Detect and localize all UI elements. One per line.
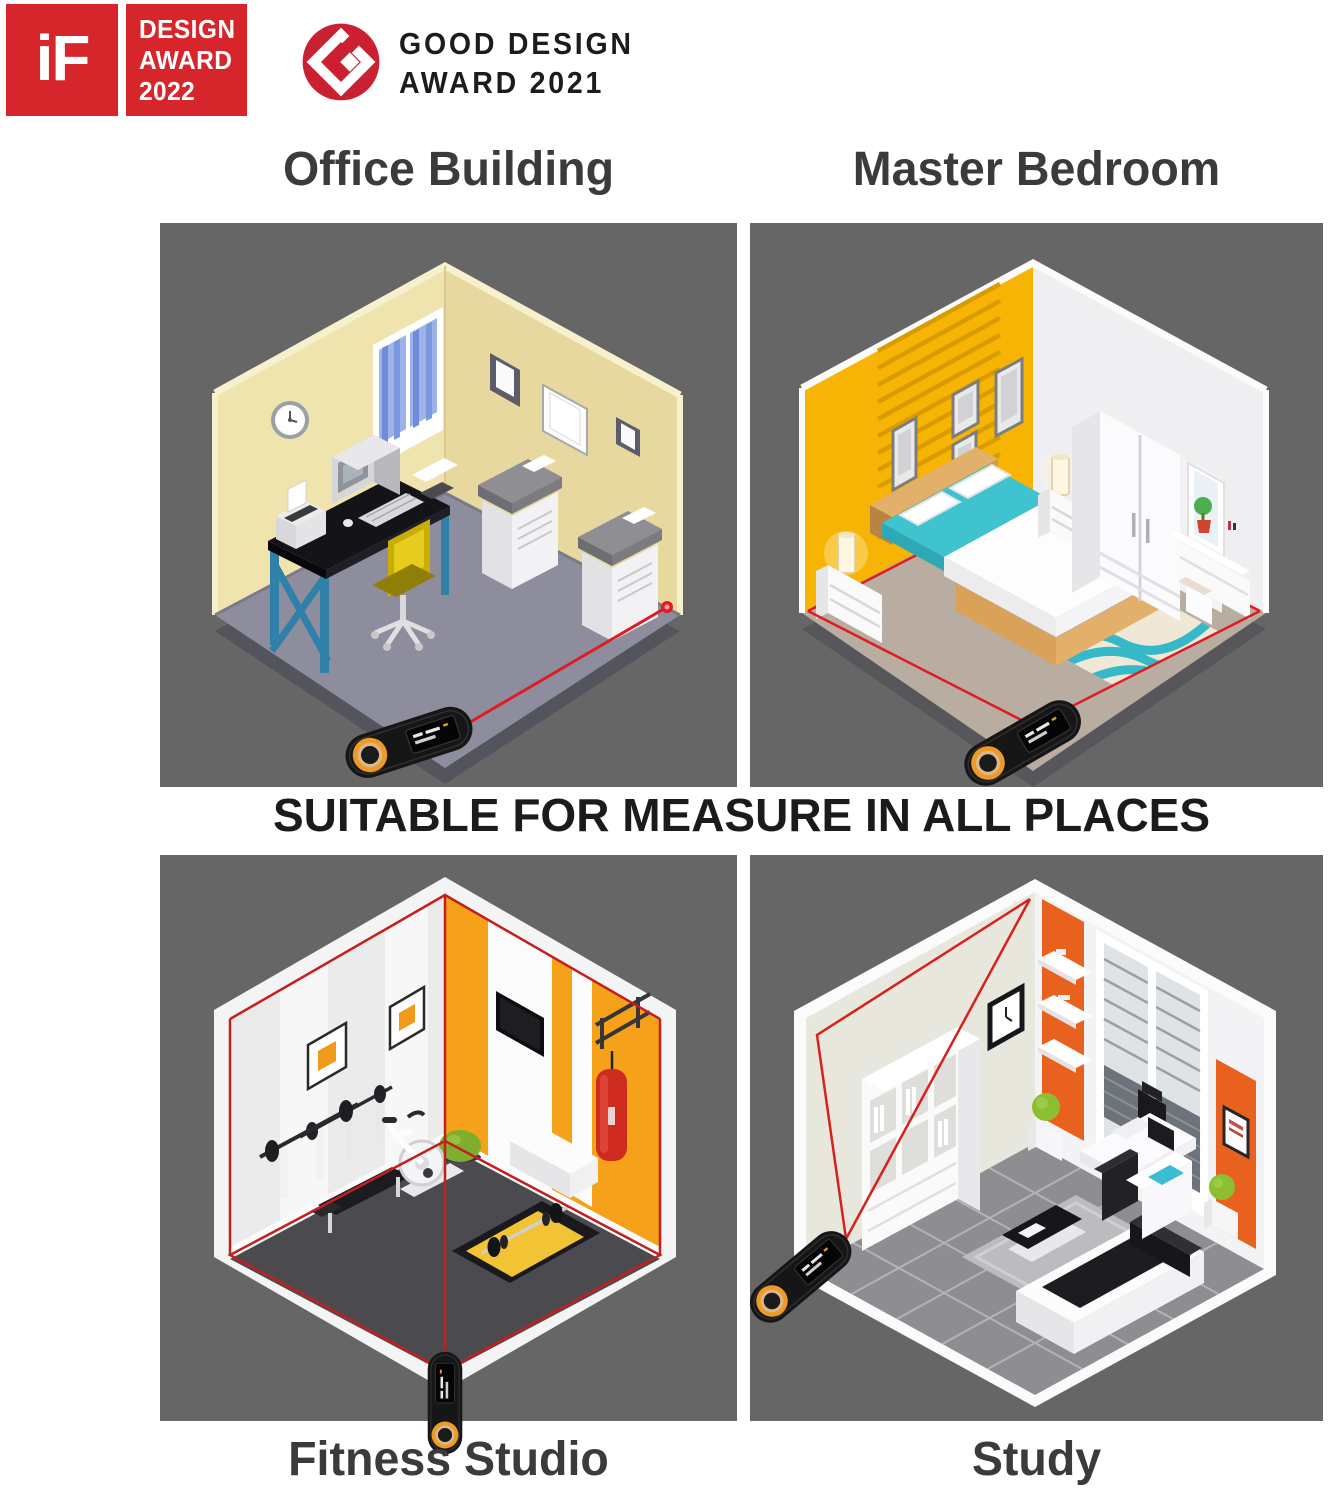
if-design-award-text-badge: DESIGN AWARD 2022 <box>126 4 247 116</box>
if-logo-icon: iF <box>36 21 89 95</box>
product-infographic: iF DESIGN AWARD 2022 GOOD DESIGN AWARD 2… <box>0 0 1330 1498</box>
g-mark-logo-icon <box>301 22 381 102</box>
office-building-illustration <box>160 223 737 787</box>
panel-title-fitness-studio: Fitness Studio <box>169 1432 729 1487</box>
master-bedroom-scene <box>750 223 1323 787</box>
panel-title-study: Study <box>759 1432 1315 1487</box>
study-scene <box>750 855 1323 1421</box>
headline: SUITABLE FOR MEASURE IN ALL PLACES <box>160 788 1323 842</box>
if-design-award-logo-badge: iF <box>6 4 118 116</box>
if-award-line: 2022 <box>139 76 241 107</box>
office-building-scene <box>160 223 737 787</box>
if-award-line: DESIGN <box>139 14 241 45</box>
panel-title-office-building: Office Building <box>169 142 729 197</box>
good-design-line: GOOD DESIGN <box>399 24 675 63</box>
fitness-studio-illustration <box>160 855 737 1421</box>
wall-clock <box>273 403 307 437</box>
good-design-line: AWARD 2021 <box>399 63 675 102</box>
fitness-studio-scene <box>160 855 737 1421</box>
study-illustration <box>750 855 1323 1421</box>
master-bedroom-illustration <box>750 223 1323 787</box>
good-design-award-badge <box>301 22 381 102</box>
if-award-line: AWARD <box>139 45 241 76</box>
panel-title-master-bedroom: Master Bedroom <box>759 142 1315 197</box>
good-design-award-text: GOOD DESIGN AWARD 2021 <box>399 24 699 108</box>
